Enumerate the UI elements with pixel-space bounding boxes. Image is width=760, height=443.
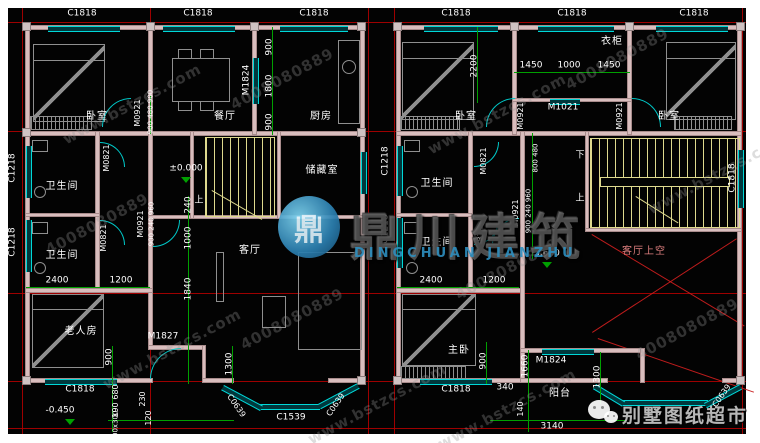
door-label: M1824 xyxy=(536,357,567,366)
window-glass xyxy=(163,26,235,32)
door-label: M0921 xyxy=(137,210,145,237)
dim-label: 1450 xyxy=(520,62,543,71)
brand-watermark-en: DINGCHUAN JIANZHU xyxy=(354,246,577,261)
wall-post xyxy=(357,376,366,385)
window-label: C1218 xyxy=(9,227,18,256)
dim-chain-label: 900 480 900 xyxy=(148,90,155,135)
dim-label: 1200 xyxy=(483,277,506,286)
room-label: 卫生间 xyxy=(46,251,79,261)
dim-label: 900 xyxy=(480,352,489,369)
door-label: M1824 xyxy=(243,65,252,96)
dim-label: 680 xyxy=(112,384,120,399)
wall xyxy=(25,213,100,217)
wall-post xyxy=(510,22,519,31)
stair-direction-label: 下 xyxy=(575,152,584,161)
window-glass xyxy=(538,26,614,32)
door-label: M0921 xyxy=(616,102,624,129)
level-triangle-icon xyxy=(65,419,75,425)
chair xyxy=(178,49,192,59)
door-label: M0921 xyxy=(517,102,525,129)
dim-chain-label: 800 480 xyxy=(533,144,540,173)
room-label: 储藏室 xyxy=(306,166,339,176)
room-label: 卫生间 xyxy=(46,182,79,192)
dim-label: 900 xyxy=(266,113,275,130)
brand-logo-glyph: 鼎 xyxy=(294,205,324,249)
window-glass xyxy=(424,26,498,32)
dim-label: 900 xyxy=(106,348,115,365)
bed-pillow xyxy=(33,44,105,61)
wall xyxy=(585,228,742,232)
bed-pillow xyxy=(402,42,474,59)
room-label: 卧室 xyxy=(455,112,477,122)
room-label: 卧室 xyxy=(658,112,680,122)
wall-post xyxy=(250,22,259,31)
room-label: 客厅 xyxy=(239,246,261,256)
wall xyxy=(25,288,153,293)
wechat-icon xyxy=(588,398,622,430)
staircase xyxy=(205,137,275,217)
red-gridline xyxy=(742,8,743,434)
dim-chain-label: 900 240 960 xyxy=(149,202,156,247)
footer-brand-label: 别墅图纸超市 xyxy=(622,401,748,428)
dim-label: 1450 xyxy=(598,62,621,71)
room-label: 衣柜 xyxy=(601,37,623,47)
wardrobe-cabinet xyxy=(674,116,732,130)
door-label: M0821 xyxy=(103,144,111,171)
window-label: C1539 xyxy=(276,414,305,423)
kitchen-counter xyxy=(338,40,360,124)
bed-pillow xyxy=(666,42,736,59)
chair xyxy=(200,101,214,111)
dim-label: 240 xyxy=(185,196,194,213)
room-label: 厨房 xyxy=(310,112,332,122)
window-label: C1818 xyxy=(183,10,212,19)
dim-label: 1800 xyxy=(266,75,275,98)
wechat-bubble-small xyxy=(604,411,618,423)
room-label: 阳台 xyxy=(549,389,571,399)
bathroom-sink xyxy=(32,140,48,152)
wall-post xyxy=(146,22,155,31)
window-glass xyxy=(361,152,367,194)
dim-label: 1200 xyxy=(110,277,133,286)
dim-label: 2400 xyxy=(420,277,443,286)
toilet xyxy=(34,186,46,198)
window-label: C1818 xyxy=(557,10,586,19)
window-label: C1818 xyxy=(441,386,470,395)
dim-label: 1000 xyxy=(185,227,194,250)
window-glass xyxy=(26,220,32,272)
dim-label: 140 xyxy=(517,401,525,416)
bathroom-sink xyxy=(32,222,48,234)
bathroom-sink xyxy=(404,140,420,152)
dim-label: 300x300 xyxy=(113,411,120,442)
floor-plan-sheet: C1818 C1818 C1818 900 1800 900 M1824 卧室 … xyxy=(0,0,760,443)
dim-label: 1840 xyxy=(185,278,194,301)
tv-cabinet xyxy=(216,252,224,302)
wall-post xyxy=(357,22,366,31)
wall-post xyxy=(393,22,402,31)
wall xyxy=(148,25,153,350)
chair xyxy=(178,101,192,111)
red-gridline xyxy=(8,293,746,294)
wall xyxy=(202,378,234,383)
dim-label: 1300 xyxy=(226,353,235,376)
wall-post xyxy=(736,376,745,385)
dim-label: 2200 xyxy=(471,55,480,78)
level-label: -0.450 xyxy=(45,407,74,416)
dim-label: 1660 xyxy=(522,355,531,378)
room-label: 卧室 xyxy=(86,112,108,122)
door-label: M1021 xyxy=(548,104,579,113)
toilet xyxy=(34,262,46,274)
window-glass xyxy=(397,146,403,196)
window-label: C1818 xyxy=(65,386,94,395)
brand-logo-icon: 鼎 xyxy=(278,196,340,258)
window-label: C1818 xyxy=(441,10,470,19)
dimension-line xyxy=(26,287,150,288)
bed-pillow xyxy=(32,294,104,310)
window-glass xyxy=(258,404,320,410)
dim-label: 230 xyxy=(139,391,147,406)
wall xyxy=(25,25,30,383)
window-label: C1218 xyxy=(382,146,391,175)
window-glass xyxy=(48,26,120,32)
window-label: C1818 xyxy=(299,10,328,19)
window-glass xyxy=(26,146,32,198)
wall-post xyxy=(22,128,31,137)
level-triangle-icon xyxy=(181,177,191,183)
dim-label: 1300 xyxy=(594,366,603,389)
dimension-line xyxy=(108,420,234,421)
window-label: C1818 xyxy=(729,163,738,192)
toilet xyxy=(406,186,418,198)
room-label: 客厅上空 xyxy=(622,247,666,257)
dim-label: 1000 xyxy=(558,62,581,71)
balcony-door xyxy=(542,349,594,355)
wall-post xyxy=(625,22,634,31)
door-label: M1827 xyxy=(148,333,179,342)
wall-post xyxy=(357,128,366,137)
room-label: 老人房 xyxy=(65,327,98,337)
door-label: M0821 xyxy=(100,224,108,251)
dim-label: 2400 xyxy=(46,277,69,286)
window-label: C1218 xyxy=(9,153,18,182)
chair xyxy=(200,49,214,59)
wall-post xyxy=(22,22,31,31)
red-gridline xyxy=(8,22,746,23)
dim-label: 3140 xyxy=(541,423,564,432)
footer-branding: 别墅图纸超市 xyxy=(588,398,748,430)
room-label: 卫生间 xyxy=(421,179,454,189)
wall xyxy=(277,131,281,219)
dim-label: 900 xyxy=(266,38,275,55)
wall-post xyxy=(736,22,745,31)
stair-direction-label: 上 xyxy=(194,197,203,206)
wall-post xyxy=(22,376,31,385)
dim-label: 340 xyxy=(496,384,513,393)
door-label: M0821 xyxy=(480,147,488,174)
dim-label: 120 xyxy=(145,410,153,425)
window-label: C1818 xyxy=(67,10,96,19)
level-label: ±0.000 xyxy=(169,165,202,174)
room-label: 餐厅 xyxy=(214,112,236,122)
window-glass xyxy=(280,26,348,32)
kitchen-sink xyxy=(342,60,356,74)
door-label: M0921 xyxy=(134,99,142,126)
window-label: C1818 xyxy=(679,10,708,19)
room-label: 主卧 xyxy=(448,346,470,356)
red-gridline xyxy=(22,8,23,434)
